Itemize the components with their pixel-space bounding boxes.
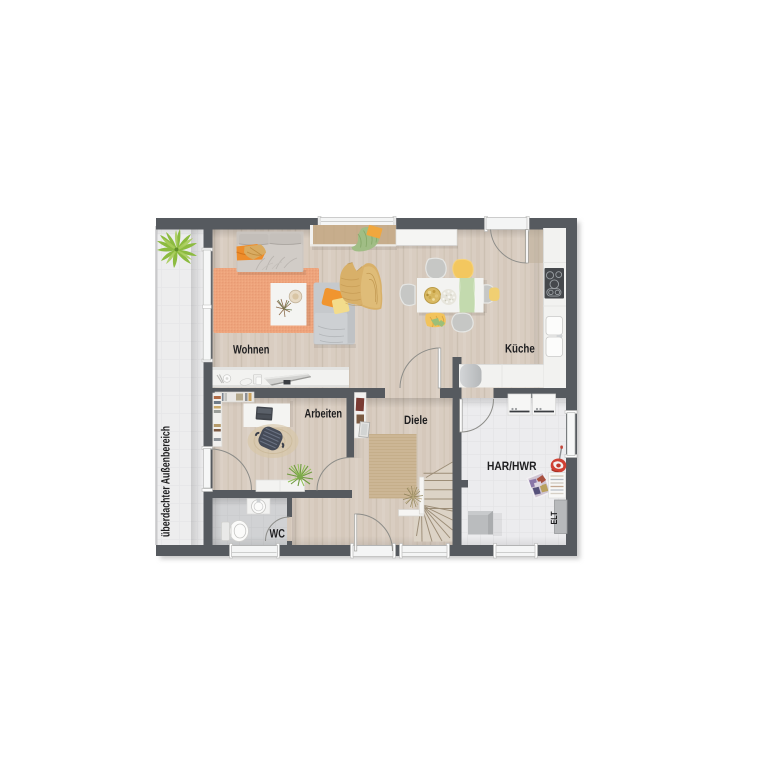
svg-text:ELT: ELT [549, 511, 559, 524]
svg-text:Diele: Diele [404, 413, 428, 427]
svg-text:WC: WC [270, 526, 286, 540]
svg-text:Arbeiten: Arbeiten [305, 407, 343, 421]
svg-text:Küche: Küche [505, 341, 535, 355]
svg-text:überdachter Außenbereich: überdachter Außenbereich [158, 426, 172, 537]
svg-text:Wohnen: Wohnen [233, 343, 269, 357]
svg-text:HAR/HWR: HAR/HWR [487, 459, 537, 473]
